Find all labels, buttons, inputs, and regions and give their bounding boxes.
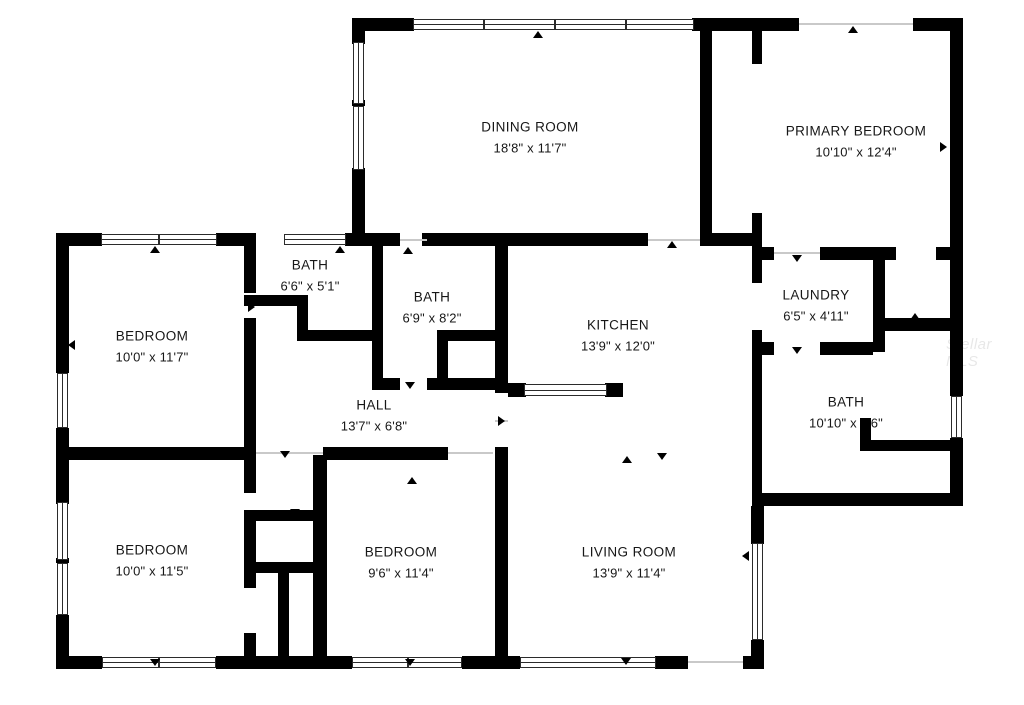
wall	[752, 245, 762, 283]
window	[159, 234, 217, 245]
window	[408, 657, 462, 668]
window	[555, 19, 626, 30]
opening-line	[799, 23, 913, 25]
room-label-dining-room: DINING ROOM 18'8" x 11'7"	[481, 117, 578, 158]
wall	[862, 440, 950, 451]
wall	[250, 562, 327, 573]
wall	[216, 656, 352, 669]
window	[524, 384, 607, 396]
wall	[762, 342, 774, 355]
room-label-bath-middle: BATH 6'9" x 8'2"	[402, 287, 461, 328]
wall	[56, 428, 69, 504]
door-marker-icon	[742, 551, 749, 561]
room-name: LIVING ROOM	[582, 542, 676, 563]
wall	[244, 318, 256, 455]
window	[57, 502, 68, 560]
wall	[352, 168, 365, 246]
opening-line	[400, 239, 427, 241]
door-marker-icon	[498, 416, 505, 426]
wall	[372, 378, 400, 390]
door-marker-icon	[657, 453, 667, 460]
wall	[950, 18, 963, 259]
wall	[860, 418, 871, 451]
door-marker-icon	[792, 255, 802, 262]
wall	[462, 656, 520, 669]
door-marker-icon	[847, 252, 857, 259]
room-dims: 10'10" x 9'6"	[809, 413, 883, 433]
window	[57, 563, 68, 615]
room-name: BATH	[402, 287, 461, 308]
door-marker-icon	[403, 247, 413, 254]
room-name: BATH	[280, 255, 339, 276]
room-dims: 6'5" x 4'11"	[782, 306, 849, 326]
door-marker-icon	[533, 31, 543, 38]
wall	[655, 656, 688, 669]
room-name: PRIMARY BEDROOM	[786, 121, 927, 142]
wall	[244, 633, 256, 669]
door-marker-icon	[622, 456, 632, 463]
wall	[495, 233, 508, 393]
window	[752, 543, 763, 640]
door-marker-icon	[325, 334, 335, 341]
wall	[244, 455, 256, 493]
room-label-bedroom-bottom-left: BEDROOM 10'0" x 11'5"	[116, 540, 189, 581]
wall	[352, 18, 365, 44]
window	[520, 657, 656, 668]
wall	[244, 233, 256, 293]
room-dims: 18'8" x 11'7"	[481, 138, 578, 158]
wall	[56, 615, 69, 669]
room-label-bath-right: BATH 10'10" x 9'6"	[809, 392, 883, 433]
door-marker-icon	[848, 26, 858, 33]
room-name: DINING ROOM	[481, 117, 578, 138]
room-dims: 10'0" x 11'5"	[116, 561, 189, 581]
door-marker-icon	[280, 451, 290, 458]
room-name: HALL	[341, 395, 407, 416]
door-marker-icon	[667, 241, 677, 248]
room-dims: 13'7" x 6'8"	[341, 416, 407, 436]
window	[951, 396, 962, 438]
door-marker-icon	[405, 659, 415, 666]
opening-line	[688, 661, 743, 663]
wall	[323, 447, 448, 460]
window	[353, 42, 364, 104]
window	[484, 19, 555, 30]
room-label-primary-bedroom: PRIMARY BEDROOM 10'10" x 12'4"	[786, 121, 927, 162]
room-label-hall: HALL 13'7" x 6'8"	[341, 395, 407, 436]
window	[353, 106, 364, 170]
door-marker-icon	[940, 142, 947, 152]
room-dims: 13'9" x 12'0"	[581, 336, 655, 356]
room-dims: 10'0" x 11'7"	[116, 347, 189, 367]
window	[57, 373, 68, 428]
wall	[936, 247, 950, 260]
wall	[873, 258, 885, 352]
room-dims: 13'9" x 11'4"	[582, 563, 676, 583]
wall	[743, 656, 764, 669]
room-label-laundry: LAUNDRY 6'5" x 4'11"	[782, 285, 849, 326]
wall	[427, 378, 507, 390]
wall	[751, 506, 764, 544]
wall	[950, 259, 963, 396]
wall	[372, 243, 383, 390]
window	[159, 657, 216, 668]
door-marker-icon	[335, 246, 345, 253]
wall	[605, 383, 623, 397]
door-marker-icon	[290, 509, 300, 516]
room-label-bath-small: BATH 6'6" x 5'1"	[280, 255, 339, 296]
room-name: BEDROOM	[116, 540, 189, 561]
room-dims: 10'10" x 12'4"	[786, 142, 927, 162]
door-marker-icon	[792, 347, 802, 354]
wall	[56, 233, 69, 373]
wall	[297, 330, 375, 341]
room-label-kitchen: KITCHEN 13'9" x 12'0"	[581, 315, 655, 356]
room-dims: 9'6" x 11'4"	[365, 563, 438, 583]
wall	[244, 510, 324, 521]
door-marker-icon	[150, 246, 160, 253]
opening-line	[448, 452, 493, 454]
opening-line	[774, 252, 820, 254]
room-dims: 6'9" x 8'2"	[402, 308, 461, 328]
door-marker-icon	[407, 477, 417, 484]
wall	[700, 30, 712, 233]
room-label-living-room: LIVING ROOM 13'9" x 11'4"	[582, 542, 676, 583]
wall	[762, 247, 774, 260]
window	[626, 19, 694, 30]
window	[413, 19, 484, 30]
room-name: LAUNDRY	[782, 285, 849, 306]
wall	[278, 573, 289, 657]
wall	[752, 30, 762, 64]
door-marker-icon	[405, 382, 415, 389]
room-name: BEDROOM	[116, 326, 189, 347]
room-label-bedroom-bottom-mid: BEDROOM 9'6" x 11'4"	[365, 542, 438, 583]
wall	[495, 447, 508, 669]
wall	[752, 330, 762, 506]
door-marker-icon	[68, 340, 75, 350]
floor-plan: DINING ROOM 18'8" x 11'7" PRIMARY BEDROO…	[0, 0, 1024, 705]
room-name: BEDROOM	[365, 542, 438, 563]
door-marker-icon	[910, 313, 920, 320]
door-marker-icon	[150, 659, 160, 666]
wall	[820, 342, 873, 355]
room-dims: 6'6" x 5'1"	[280, 276, 339, 296]
window	[101, 234, 159, 245]
door-marker-icon	[248, 302, 255, 312]
door-marker-icon	[621, 658, 631, 665]
wall	[244, 512, 256, 588]
window	[352, 657, 408, 668]
wall	[752, 493, 963, 506]
wall	[422, 233, 648, 246]
wall	[56, 447, 256, 460]
room-name: KITCHEN	[581, 315, 655, 336]
wall	[752, 213, 762, 247]
room-label-bedroom-left: BEDROOM 10'0" x 11'7"	[116, 326, 189, 367]
room-name: BATH	[809, 392, 883, 413]
wall	[437, 330, 507, 341]
window	[284, 234, 346, 245]
